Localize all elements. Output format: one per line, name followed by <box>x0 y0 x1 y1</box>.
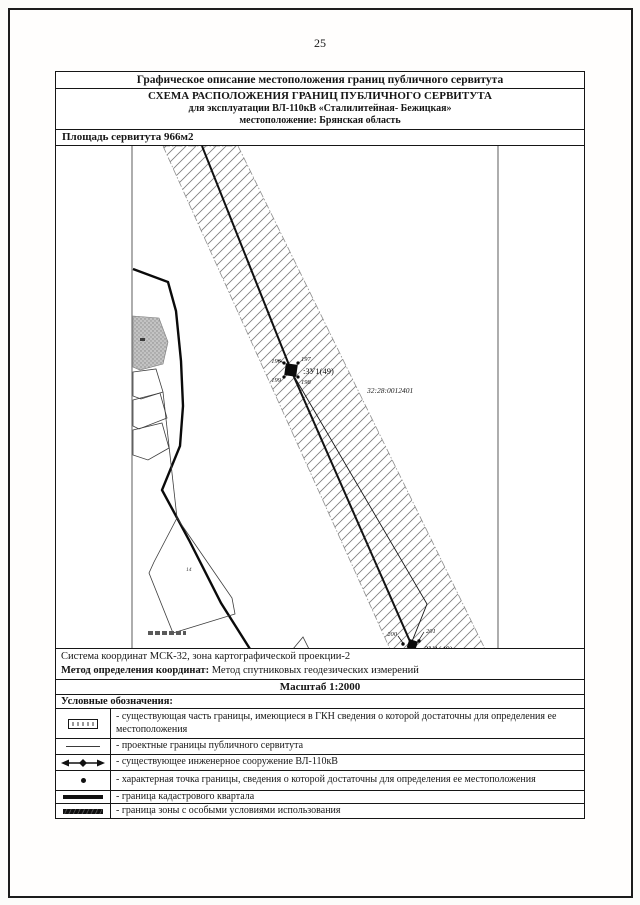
point-label-198: 198 <box>301 379 312 386</box>
point-dot-198 <box>296 375 299 378</box>
document-table: Графическое описание местоположения гран… <box>55 71 585 819</box>
parcel-outline <box>133 369 163 399</box>
special-zone-symbol <box>56 804 111 818</box>
existing-boundary-box-icon <box>68 719 98 729</box>
legend-text: - граница зоны с особыми условиями испол… <box>116 805 341 818</box>
scale-label: Масштаб 1:2000 <box>56 680 584 695</box>
point-dot-197 <box>296 361 299 364</box>
legend-row-characteristic-point: - характерная точка границы, сведения о … <box>56 771 584 791</box>
scheme-subtitle: для эксплуатации ВЛ-110кВ «Сталилитейная… <box>56 103 584 115</box>
building-area <box>133 316 168 370</box>
point-label-197: 197 <box>301 356 312 363</box>
point-dot-icon <box>81 778 86 783</box>
scanned-document-page: 25 Графическое описание местоположения г… <box>0 0 640 905</box>
project-boundary-symbol <box>56 739 111 754</box>
thin-line-icon <box>66 746 100 747</box>
legend-row-existing-boundary: - существующая часть границы, имеющиеся … <box>56 709 584 739</box>
legend-text: - граница кадастрового квартала <box>116 791 254 804</box>
scheme-location: местоположение: Брянская область <box>56 115 584 127</box>
small-triangle-parcel <box>293 637 309 649</box>
method-value: Метод спутниковых геодезических измерени… <box>209 665 419 676</box>
page-number: 25 <box>0 36 640 51</box>
legend-text: - существующая часть границы, имеющиеся … <box>116 711 579 736</box>
coordinate-system-block: Система координат МСК-32, зона картограф… <box>56 649 584 680</box>
servitude-parcel-label-upper: :ЗУ1(49) <box>303 366 334 376</box>
legend-text: - характерная точка границы, сведения о … <box>116 774 536 787</box>
legend-text: - проектные границы публичного сервитута <box>116 740 303 753</box>
quarter-boundary-symbol <box>56 791 111 803</box>
method-line: Метод определения координат: Метод спутн… <box>61 664 579 678</box>
document-title: Графическое описание местоположения гран… <box>56 72 584 89</box>
legend-row-project-boundary: - проектные границы публичного сервитута <box>56 739 584 755</box>
parcel-label-14: 14 <box>186 566 192 573</box>
parcel-outline-14 <box>149 518 235 633</box>
characteristic-point-symbol <box>56 771 111 790</box>
parcel-boundary-line <box>163 392 177 518</box>
tower-upper-symbol <box>284 363 298 377</box>
point-label-201: 201 <box>426 628 436 635</box>
existing-boundary-symbol <box>56 709 111 738</box>
zone-line-icon <box>63 809 103 814</box>
servitude-parcel-label-lower: :ЗУ1(49) <box>422 644 453 649</box>
legend-title: Условные обозначения: <box>56 695 584 709</box>
legend-row-special-zone: - граница зоны с особыми условиями испол… <box>56 804 584 818</box>
coordinate-system: Система координат МСК-32, зона картограф… <box>61 650 579 664</box>
building-area-small-label <box>140 338 145 341</box>
parcel-outline <box>133 423 169 460</box>
point-dot-199 <box>282 375 285 378</box>
point-label-199: 199 <box>271 377 282 384</box>
map-drawing: 14 196 197 199 198 :ЗУ1(49) 32:28:001240 <box>56 146 584 649</box>
map-area: 14 196 197 199 198 :ЗУ1(49) 32:28:001240 <box>56 146 584 649</box>
legend-row-power-line: - существующее инженерное сооружение ВЛ-… <box>56 755 584 771</box>
cadastral-quarter-label: 32:28:0012401 <box>366 386 413 395</box>
legend-row-quarter-boundary: - граница кадастрового квартала <box>56 791 584 804</box>
point-label-200: 200 <box>387 631 398 638</box>
scheme-title: СХЕМА РАСПОЛОЖЕНИЯ ГРАНИЦ ПУБЛИЧНОГО СЕР… <box>56 90 584 103</box>
power-line-symbol <box>56 755 111 770</box>
legend-text: - существующее инженерное сооружение ВЛ-… <box>116 756 338 769</box>
point-label-196: 196 <box>271 358 282 365</box>
special-conditions-zone-hatch <box>163 146 485 649</box>
scheme-header: СХЕМА РАСПОЛОЖЕНИЯ ГРАНИЦ ПУБЛИЧНОГО СЕР… <box>56 89 584 130</box>
power-line-arrows-icon <box>61 757 105 769</box>
thick-line-icon <box>63 795 103 799</box>
servitude-area-label: Площадь сервитута 966м2 <box>56 130 584 146</box>
method-label: Метод определения координат: <box>61 665 209 676</box>
